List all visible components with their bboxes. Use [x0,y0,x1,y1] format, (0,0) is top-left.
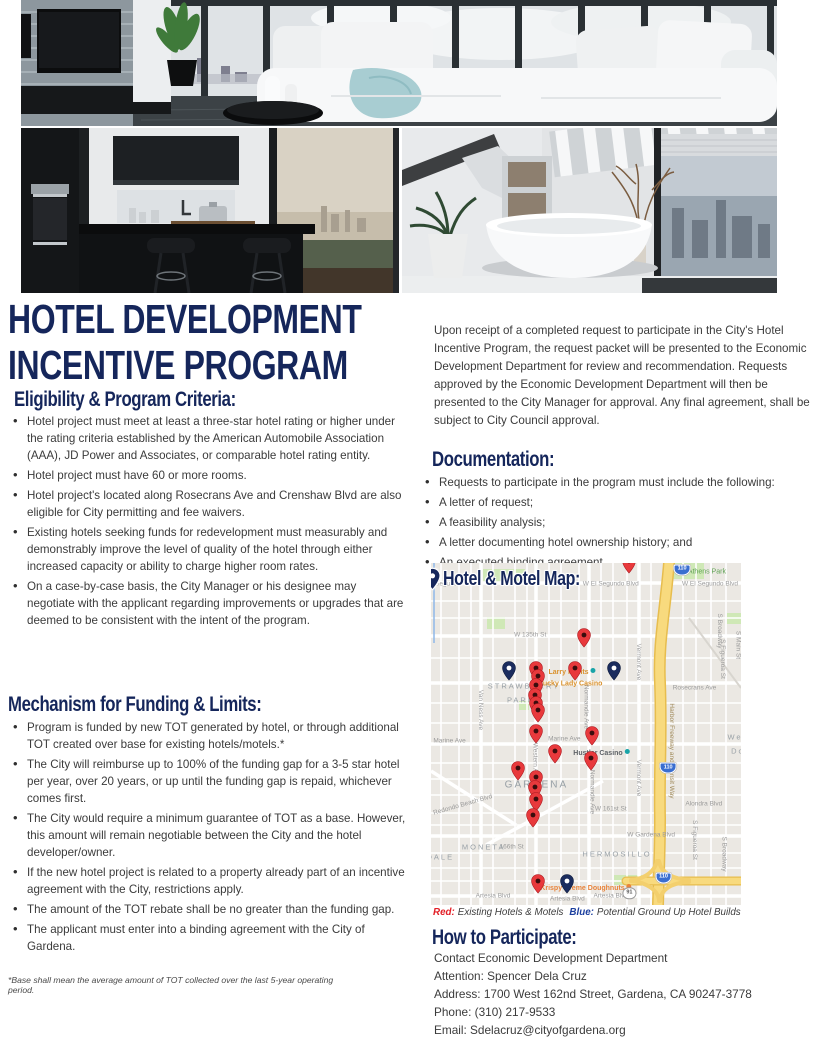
eligibility-list: Hotel project must meet at least a three… [10,413,406,632]
legend-blue-label: Blue: [569,907,594,918]
contact-line: Attention: Spencer Dela Cruz [434,967,812,985]
existing-hotel-pin [549,745,562,764]
contact-line-text: Email: Sdelacruz@cityofgardena.org [434,1023,626,1037]
map-label: MONETA [462,842,506,851]
existing-hotel-pin [527,808,540,827]
contact-line: Address: 1700 West 162nd Street, Gardena… [434,985,812,1003]
bullet-item: A letter of request; [422,494,808,511]
bullet-item: Hotel project must meet at least a three… [10,413,406,464]
mechanism-list: Program is funded by new TOT generated b… [10,719,406,958]
existing-hotel-pin [511,762,524,781]
bullet-text: The applicant must enter into a binding … [27,923,365,953]
bullet-item: The applicant must enter into a binding … [10,921,406,955]
map-label: Vermont Ave [635,760,642,797]
footnote: *Base shall mean the average amount of T… [8,975,348,995]
legend-blue-text: Potential Ground Up Hotel Builds [597,907,741,918]
bullet-item: Hotel project's located along Rosecrans … [10,487,406,521]
bullet-text: Program is funded by new TOT generated b… [27,721,399,751]
bullet-item: On a case-by-case basis, the City Manage… [10,578,406,629]
map-legend: Red:Existing Hotels & MotelsBlue:Potenti… [433,907,741,918]
map-label: Rosecrans Ave [673,684,717,691]
living-room-photo [21,0,777,126]
bullet-text: The amount of the TOT rebate shall be no… [27,903,394,916]
map-label: Artesia Blvd [550,895,585,902]
map-label: Athens Park [688,568,726,575]
bullet-item: Hotel project must have 60 or more rooms… [10,467,406,484]
existing-hotel-pin [623,563,636,573]
intro-paragraph: Upon receipt of a completed request to p… [434,322,812,430]
bullet-text: Hotel project's located along Rosecrans … [27,489,402,519]
map-label: W El Segundo Blvd [682,580,738,587]
map-label: Do [731,747,741,756]
map-label: Van Ness Ave [477,690,484,730]
map-label: Krispy Kreme Doughnuts [540,884,631,892]
map-label: Normandie Ave [589,770,596,814]
map-label: Harbor Freeway and Transit Way [668,704,675,799]
bullet-text: Existing hotels seeking funds for redeve… [27,526,387,573]
contact-line-text: Attention: Spencer Dela Cruz [434,969,587,983]
contact-line-text: Address: 1700 West 162nd Street, Gardena… [434,987,752,1001]
bullet-text: A letter documenting hotel ownership his… [439,536,692,549]
map-label: W 161st St [595,806,627,813]
bathroom-photo [402,128,777,293]
map-label: Marine Ave [433,737,465,744]
map-pin-icon [431,568,440,590]
map-heading: Hotel & Motel Map: [431,567,619,591]
potential-hotel-pin [607,661,620,680]
legend-red-label: Red: [433,907,455,918]
map-label: Alondra Blvd [685,801,722,808]
bullet-text: Hotel project must have 60 or more rooms… [27,469,247,482]
map-label: Lucky Lady Casino [539,681,603,688]
potential-hotel-pin [502,661,515,680]
legend-red-text: Existing Hotels & Motels [458,907,564,918]
map-label: Hustler Casino [573,749,629,757]
bullet-text: The City will reimburse up to 100% of th… [27,758,400,805]
eligibility-heading-text: Eligibility & Program Criteria: [14,388,236,410]
existing-hotel-pin [578,628,591,647]
section-heading-participate: How to Participate: [432,926,617,951]
contact-block: Contact Economic Development DepartmentA… [434,949,812,1039]
title-line-2: INCENTIVE PROGRAM [8,347,348,384]
existing-hotel-pin [569,661,582,680]
potential-hotel-pin [561,874,574,893]
section-heading-documentation: Documentation: [432,448,589,473]
page-title: HOTEL DEVELOPMENT INCENTIVE PROGRAM [8,301,461,393]
section-heading-eligibility: Eligibility & Program Criteria: [14,388,298,413]
map-label: S Figueroa St [691,820,698,860]
bullet-text: On a case-by-case basis, the City Manage… [27,580,403,627]
highway-shield: 91 [623,887,636,899]
bullet-item: A feasibility analysis; [422,514,808,531]
bullet-item: Existing hotels seeking funds for redeve… [10,524,406,575]
contact-line-text: Contact Economic Development Department [434,951,667,965]
map-label: S Broadway [720,836,727,871]
map-label: S Figueroa St [719,639,726,679]
map-label: Marine Ave [548,736,580,743]
bullet-item: The City would require a minimum guarant… [10,810,406,861]
map-label: HERMOSILLO [582,849,651,858]
map-label: W Gardena Blvd [627,831,675,838]
bullet-text: A letter of request; [439,496,533,509]
title-line-1: HOTEL DEVELOPMENT [8,301,361,338]
bullet-text: If the new hotel project is related to a… [27,866,405,896]
existing-hotel-pin [530,724,543,743]
existing-hotel-pin [584,751,597,770]
map-label: Artesia Blvd [476,893,511,900]
contact-line: Contact Economic Development Department [434,949,812,967]
map-label: Wes [727,733,741,742]
bullet-item: A letter documenting hotel ownership his… [422,534,808,551]
contact-line: Phone: (310) 217-9533 [434,1003,812,1021]
bullet-item: Program is funded by new TOT generated b… [10,719,406,753]
documentation-list: Requests to participate in the program m… [422,474,808,574]
existing-hotel-pin [586,726,599,745]
map-label: Normandie Ave [583,684,590,728]
document-page: HOTEL DEVELOPMENT INCENTIVE PROGRAM Elig… [0,0,816,1056]
bullet-text: Requests to participate in the program m… [439,476,775,489]
bullet-item: Requests to participate in the program m… [422,474,808,491]
bullet-text: Hotel project must meet at least a three… [27,415,395,462]
kitchen-photo [21,128,399,293]
bullet-text: The City would require a minimum guarant… [27,812,405,859]
map-label: S Main St [734,631,741,659]
map-label: W 135th St [514,631,546,638]
existing-hotel-pin [531,874,544,893]
map-label: Vermont Ave [635,644,642,681]
bullet-item: The amount of the TOT rebate shall be no… [10,901,406,918]
bullet-item: If the new hotel project is related to a… [10,864,406,898]
section-heading-mechanism: Mechanism for Funding & Limits: [8,693,333,718]
participate-heading-text: How to Participate: [432,926,576,948]
contact-line-text: Phone: (310) 217-9533 [434,1005,555,1019]
map-heading-text: Hotel & Motel Map: [443,567,580,591]
contact-line: Email: Sdelacruz@cityofgardena.org [434,1021,812,1039]
existing-hotel-pin [531,703,544,722]
bullet-item: The City will reimburse up to 100% of th… [10,756,406,807]
bullet-text: A feasibility analysis; [439,516,545,529]
documentation-heading-text: Documentation: [432,448,554,470]
map-label: DALE [431,853,454,862]
hotel-motel-map: W El SegundoW El Segundo BlvdW El Segund… [431,563,741,905]
mechanism-heading-text: Mechanism for Funding & Limits: [8,693,261,715]
